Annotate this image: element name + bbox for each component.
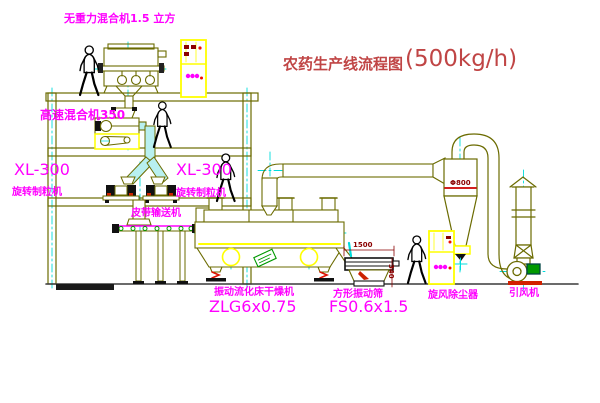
control-cabinet-top <box>181 40 206 97</box>
person-ground-floor <box>408 236 426 283</box>
label-screen-model: FS0.6x1.5 <box>329 299 408 315</box>
label-belt-conveyor: 皮带输送机 <box>131 209 181 219</box>
person-top-floor <box>80 46 98 95</box>
foundation-strip <box>56 284 114 290</box>
label-granulator-left-name: 旋转制粒机 <box>12 188 62 198</box>
exhaust-stack-drawing <box>510 177 536 264</box>
fan-drawing <box>507 262 542 286</box>
title-text: 农药生产线流程图 <box>283 46 403 74</box>
label-dryer-model: ZLG6x0.75 <box>209 299 297 315</box>
diagram-title: 农药生产线流程图 (500kg/h) <box>283 46 517 74</box>
label-granulator-right-name: 旋转制粒机 <box>176 189 226 199</box>
label-fan: 引风机 <box>509 289 539 299</box>
title-capacity: (500kg/h) <box>405 46 517 72</box>
person-second-floor <box>154 102 171 147</box>
label-cyclone: 旋风除尘器 <box>428 291 478 301</box>
dim-screen-length: 1500 <box>353 242 372 249</box>
gravity-mixer-drawing <box>98 44 166 115</box>
dim-cyclone-diameter: Φ800 <box>450 180 471 187</box>
granulator-left-drawing <box>103 177 139 203</box>
control-cabinet-dryer <box>429 231 454 284</box>
label-gravity-mixer: 无重力混合机1.5 立方 <box>64 13 175 24</box>
label-high-speed-mixer: 高速混合机350 <box>40 109 125 121</box>
label-granulator-right-model: XL-300 <box>176 162 232 178</box>
label-granulator-left-model: XL-300 <box>14 162 70 178</box>
belt-conveyor-drawing <box>112 224 199 284</box>
granulator-right-drawing <box>143 177 179 203</box>
process-flow-diagram: 农药生产线流程图 (500kg/h) 无重力混合机1.5 立方 高速混合机350… <box>0 0 600 403</box>
dim-screen-height: 340 <box>387 264 394 279</box>
